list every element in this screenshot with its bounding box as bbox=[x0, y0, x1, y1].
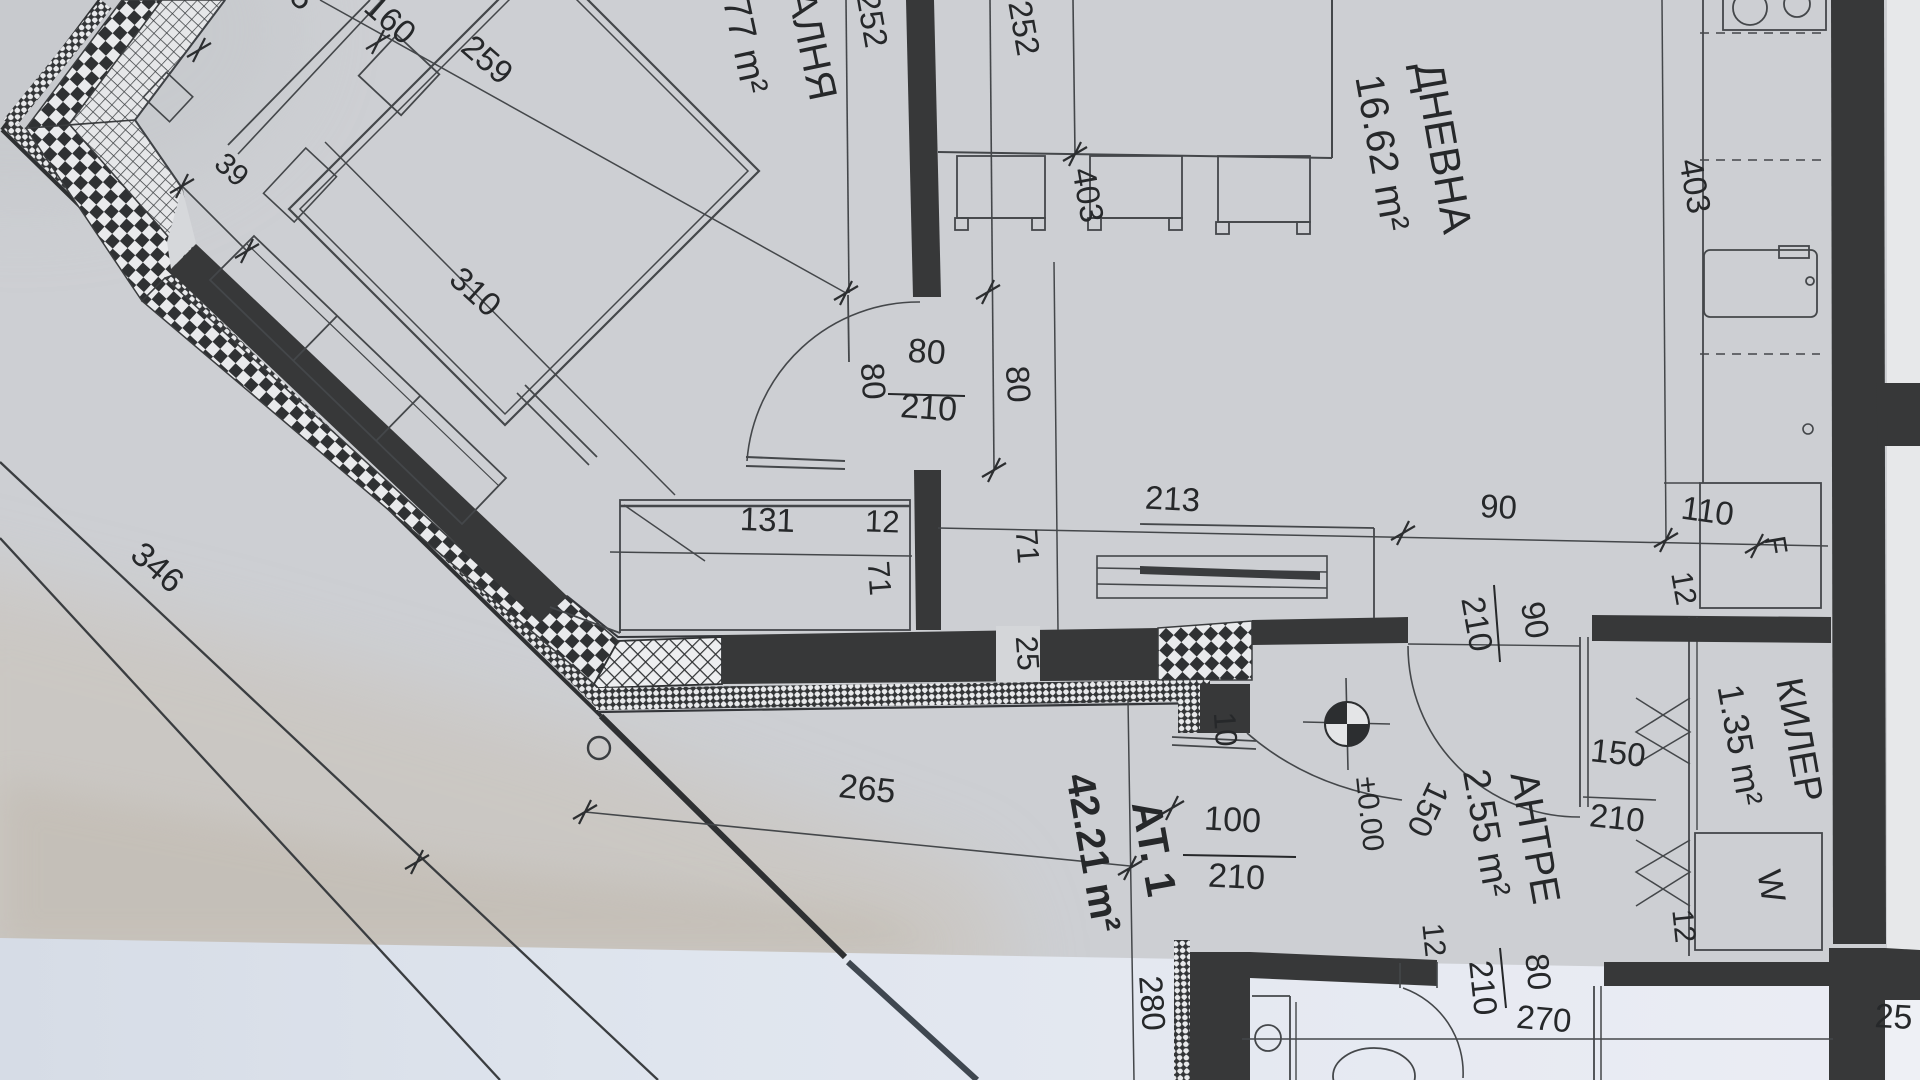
svg-text:90: 90 bbox=[1514, 599, 1557, 642]
svg-text:210: 210 bbox=[1588, 796, 1647, 839]
svg-text:25: 25 bbox=[1874, 997, 1914, 1037]
svg-text:71: 71 bbox=[1009, 528, 1046, 565]
svg-text:100: 100 bbox=[1203, 800, 1262, 841]
svg-text:80: 80 bbox=[999, 365, 1038, 404]
svg-text:131: 131 bbox=[739, 500, 795, 539]
svg-text:80: 80 bbox=[1518, 952, 1559, 992]
svg-text:12: 12 bbox=[1665, 908, 1701, 945]
svg-text:71: 71 bbox=[861, 560, 898, 597]
svg-text:10: 10 bbox=[1207, 711, 1244, 748]
svg-text:213: 213 bbox=[1144, 479, 1201, 519]
svg-text:W: W bbox=[1749, 867, 1792, 905]
svg-text:12: 12 bbox=[1415, 922, 1451, 959]
svg-text:280: 280 bbox=[1132, 974, 1173, 1032]
svg-text:210: 210 bbox=[899, 387, 958, 429]
svg-text:270: 270 bbox=[1515, 998, 1573, 1040]
svg-text:210: 210 bbox=[1207, 857, 1266, 898]
svg-text:90: 90 bbox=[1479, 487, 1518, 526]
svg-text:265: 265 bbox=[837, 767, 897, 811]
svg-text:150: 150 bbox=[1589, 731, 1648, 774]
svg-text:110: 110 bbox=[1679, 489, 1736, 533]
svg-text:210: 210 bbox=[1462, 958, 1505, 1017]
svg-text:12: 12 bbox=[1664, 569, 1702, 608]
svg-text:80: 80 bbox=[854, 362, 893, 401]
svg-text:25: 25 bbox=[1009, 635, 1046, 672]
svg-text:80: 80 bbox=[907, 332, 947, 373]
svg-text:12: 12 bbox=[865, 503, 901, 539]
